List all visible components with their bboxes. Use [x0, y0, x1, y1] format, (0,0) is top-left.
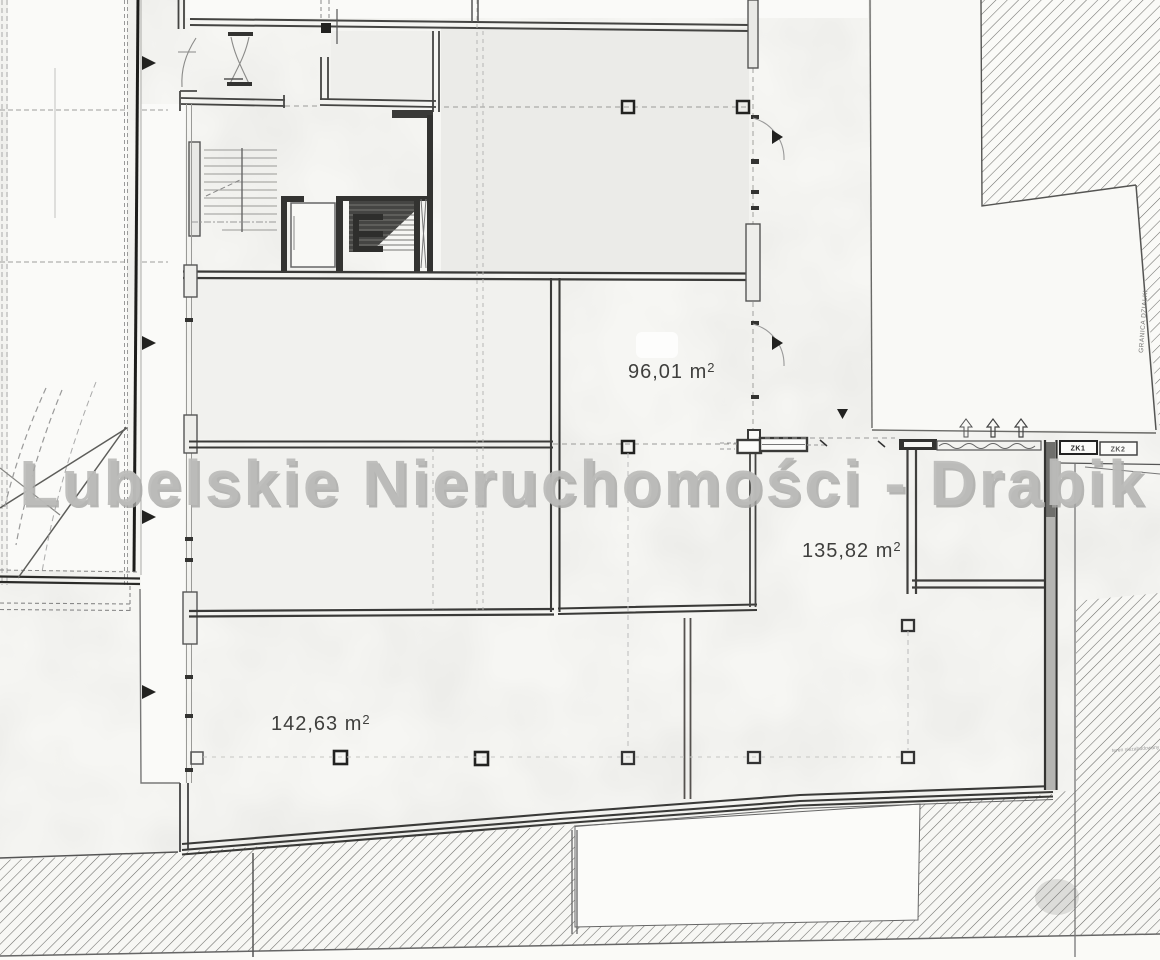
- svg-text:96,01 m2: 96,01 m2: [628, 360, 716, 383]
- svg-text:Lubelskie Nieruchomości - Drab: Lubelskie Nieruchomości - Drabik: [19, 447, 1146, 519]
- svg-text:142,63 m2: 142,63 m2: [271, 712, 371, 735]
- svg-text:135,82 m2: 135,82 m2: [802, 539, 902, 562]
